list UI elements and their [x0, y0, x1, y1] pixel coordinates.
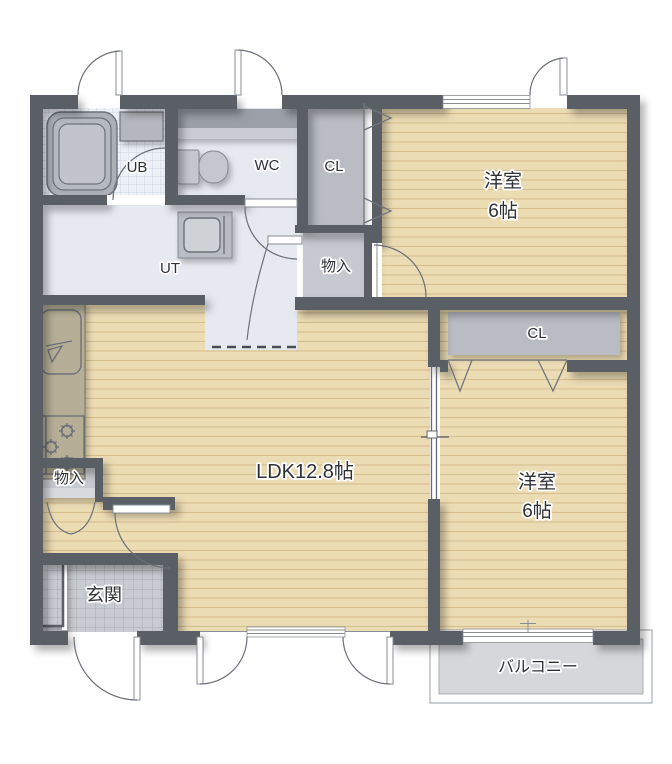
- room-label-ldk: LDK12.8帖: [256, 460, 354, 483]
- toilet-bowl: [199, 151, 228, 183]
- room-label-bedroom-bottom: 洋室: [518, 471, 556, 493]
- door-terrace-left: [197, 637, 247, 684]
- ut-corridor-floor: [205, 300, 297, 350]
- window-top: [443, 96, 530, 109]
- room-label-closet-top: CL: [324, 158, 343, 175]
- wc-shelf-band: [167, 128, 297, 139]
- wc-shelf: [178, 109, 297, 128]
- room-size-bedroom-top: 6帖: [488, 200, 518, 222]
- room-label-bedroom-top: 洋室: [484, 170, 522, 192]
- kitchen-counter: [38, 303, 85, 479]
- room-label-storage-lower: 物入: [54, 470, 84, 487]
- door-bedroom-top-entry: [530, 58, 567, 95]
- door-top-left: [78, 51, 122, 95]
- room-label-storage-upper: 物入: [321, 258, 351, 275]
- bathtub-icon: [47, 112, 117, 196]
- room-label-closet-right: CL: [527, 325, 546, 342]
- room-label-balcony: バルコニー: [498, 659, 578, 676]
- toilet-tank: [177, 150, 199, 184]
- door-top-middle: [235, 50, 282, 95]
- floorplan-image: UB WC UT CL 物入 洋室 6帖 LDK12.8帖 CL 洋室 6帖 物…: [0, 0, 672, 764]
- door-front: [74, 637, 140, 700]
- washing-machine-drum: [184, 216, 224, 254]
- room-size-bedroom-bottom: 6帖: [522, 500, 552, 522]
- shoe-cabinet: [40, 562, 63, 626]
- ub-door-gap: [107, 195, 165, 205]
- room-label-ut: UT: [160, 260, 180, 277]
- storage-lower-strip: [43, 488, 95, 498]
- room-label-wc: WC: [255, 157, 280, 174]
- room-label-ub: UB: [127, 159, 148, 176]
- door-terrace-right: [343, 637, 393, 684]
- vanity-unit: [120, 112, 163, 141]
- room-label-entrance: 玄関: [86, 585, 122, 605]
- floorplan-canvas: UB WC UT CL 物入 洋室 6帖 LDK12.8帖 CL 洋室 6帖 物…: [0, 0, 672, 764]
